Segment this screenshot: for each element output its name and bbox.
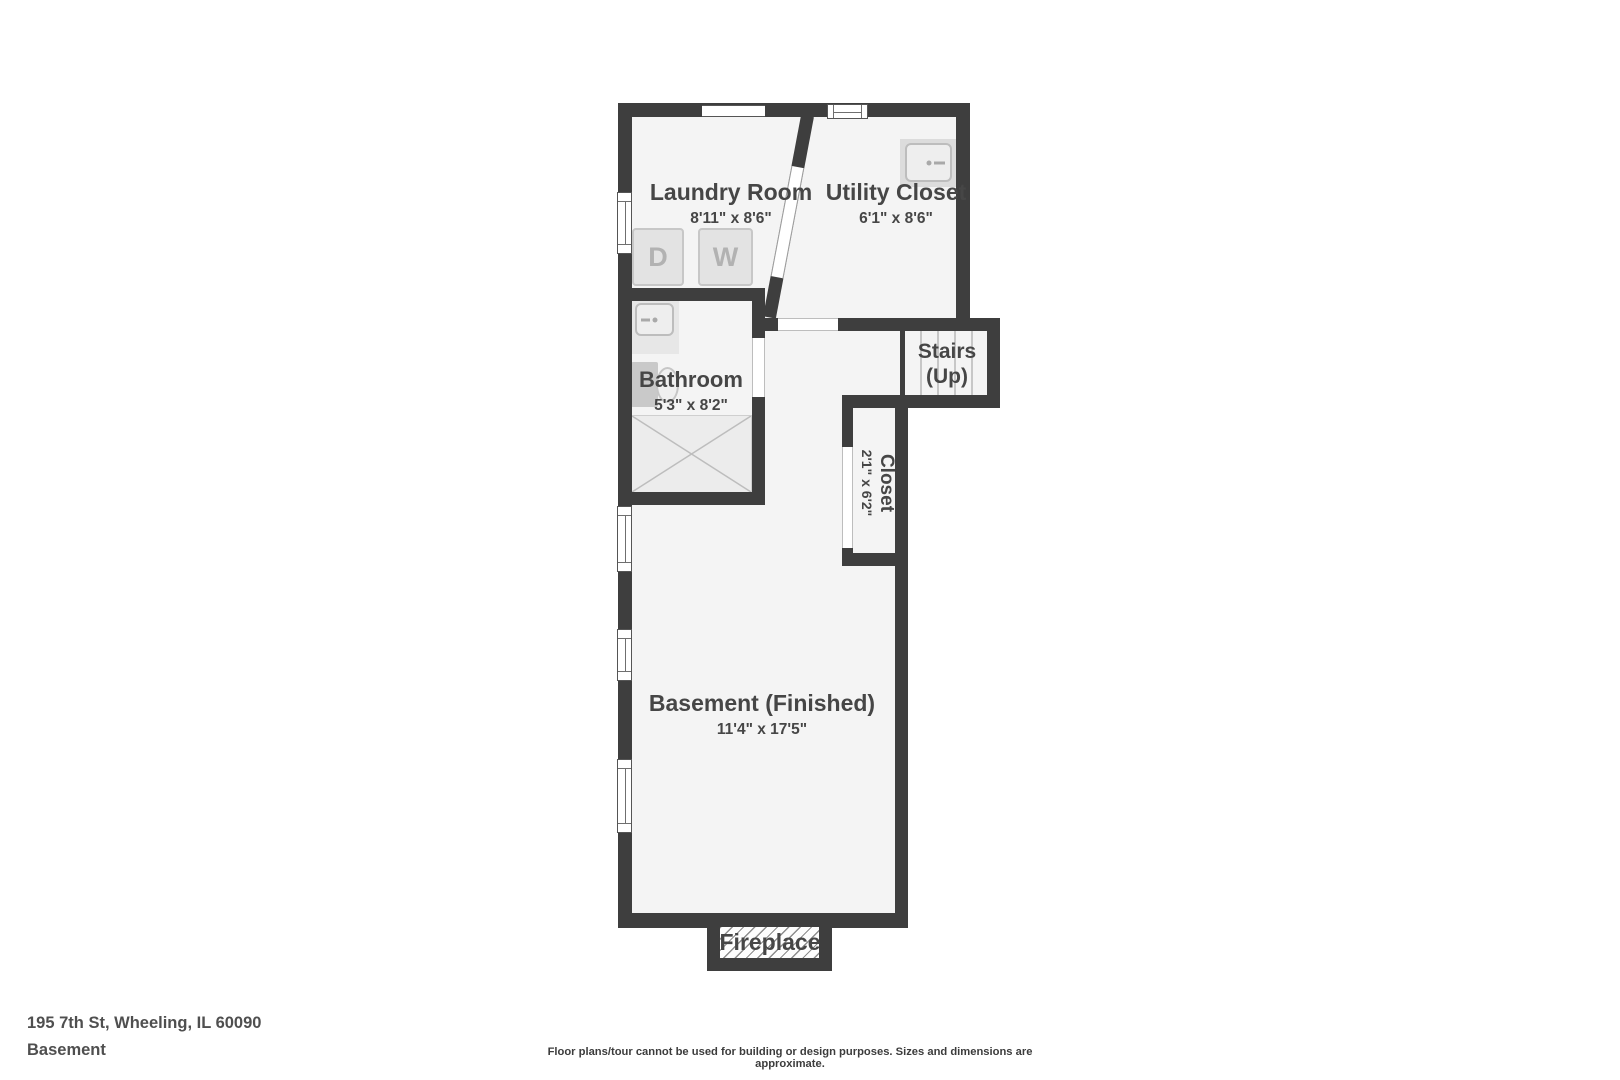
- fireplace-wall-bottom: [707, 958, 832, 971]
- basement-dimensions: 11'4" x 17'5": [612, 721, 912, 738]
- washer-letter: W: [713, 242, 738, 273]
- utility-closet-label: Utility Closet 6'1" x 8'6": [796, 180, 996, 227]
- door-opening-hall: [778, 318, 838, 331]
- dryer-icon: D: [632, 228, 684, 286]
- stairs-direction: (Up): [897, 364, 997, 389]
- window: [617, 506, 632, 572]
- window: [827, 104, 868, 119]
- utility-closet-dimensions: 6'1" x 8'6": [796, 210, 996, 227]
- wall-laundry-bathroom: [618, 288, 765, 301]
- window: [702, 105, 765, 117]
- closet-label: Closet 2'1" x 6'2": [853, 403, 897, 563]
- bathroom-name: Bathroom: [617, 368, 765, 393]
- closet-dimensions: 2'1" x 6'2": [858, 403, 874, 563]
- window: [617, 192, 632, 254]
- fireplace-label: Fireplace: [695, 930, 845, 956]
- dryer-letter: D: [648, 242, 668, 273]
- utility-sink-icon: [905, 143, 952, 182]
- stairs-name: Stairs: [897, 339, 997, 364]
- disclaimer-text: Floor plans/tour cannot be used for buil…: [540, 1046, 1040, 1070]
- basement-name: Basement (Finished): [612, 691, 912, 717]
- property-address: 195 7th St, Wheeling, IL 60090: [27, 1014, 261, 1033]
- floorplan-canvas: D W Laundry: [0, 0, 1620, 1080]
- floor-name: Basement: [27, 1041, 106, 1060]
- washer-icon: W: [698, 228, 753, 286]
- door-opening-closet: [842, 447, 853, 548]
- window: [617, 759, 632, 833]
- stairs-label: Stairs (Up): [897, 339, 997, 389]
- wall-top: [618, 103, 970, 117]
- wall-bathroom-bottom: [618, 492, 765, 505]
- bathroom-sink-icon: [635, 303, 674, 336]
- wall-basement-bottom: [618, 913, 908, 928]
- bathroom-label: Bathroom 5'3" x 8'2": [617, 368, 765, 414]
- shower-icon: [631, 415, 752, 493]
- bathroom-dimensions: 5'3" x 8'2": [617, 397, 765, 414]
- window: [617, 629, 632, 681]
- basement-label: Basement (Finished) 11'4" x 17'5": [612, 691, 912, 738]
- fireplace-name: Fireplace: [695, 930, 845, 956]
- utility-closet-name: Utility Closet: [796, 180, 996, 206]
- closet-name: Closet: [876, 403, 897, 563]
- shower-cross-lines: [632, 416, 751, 492]
